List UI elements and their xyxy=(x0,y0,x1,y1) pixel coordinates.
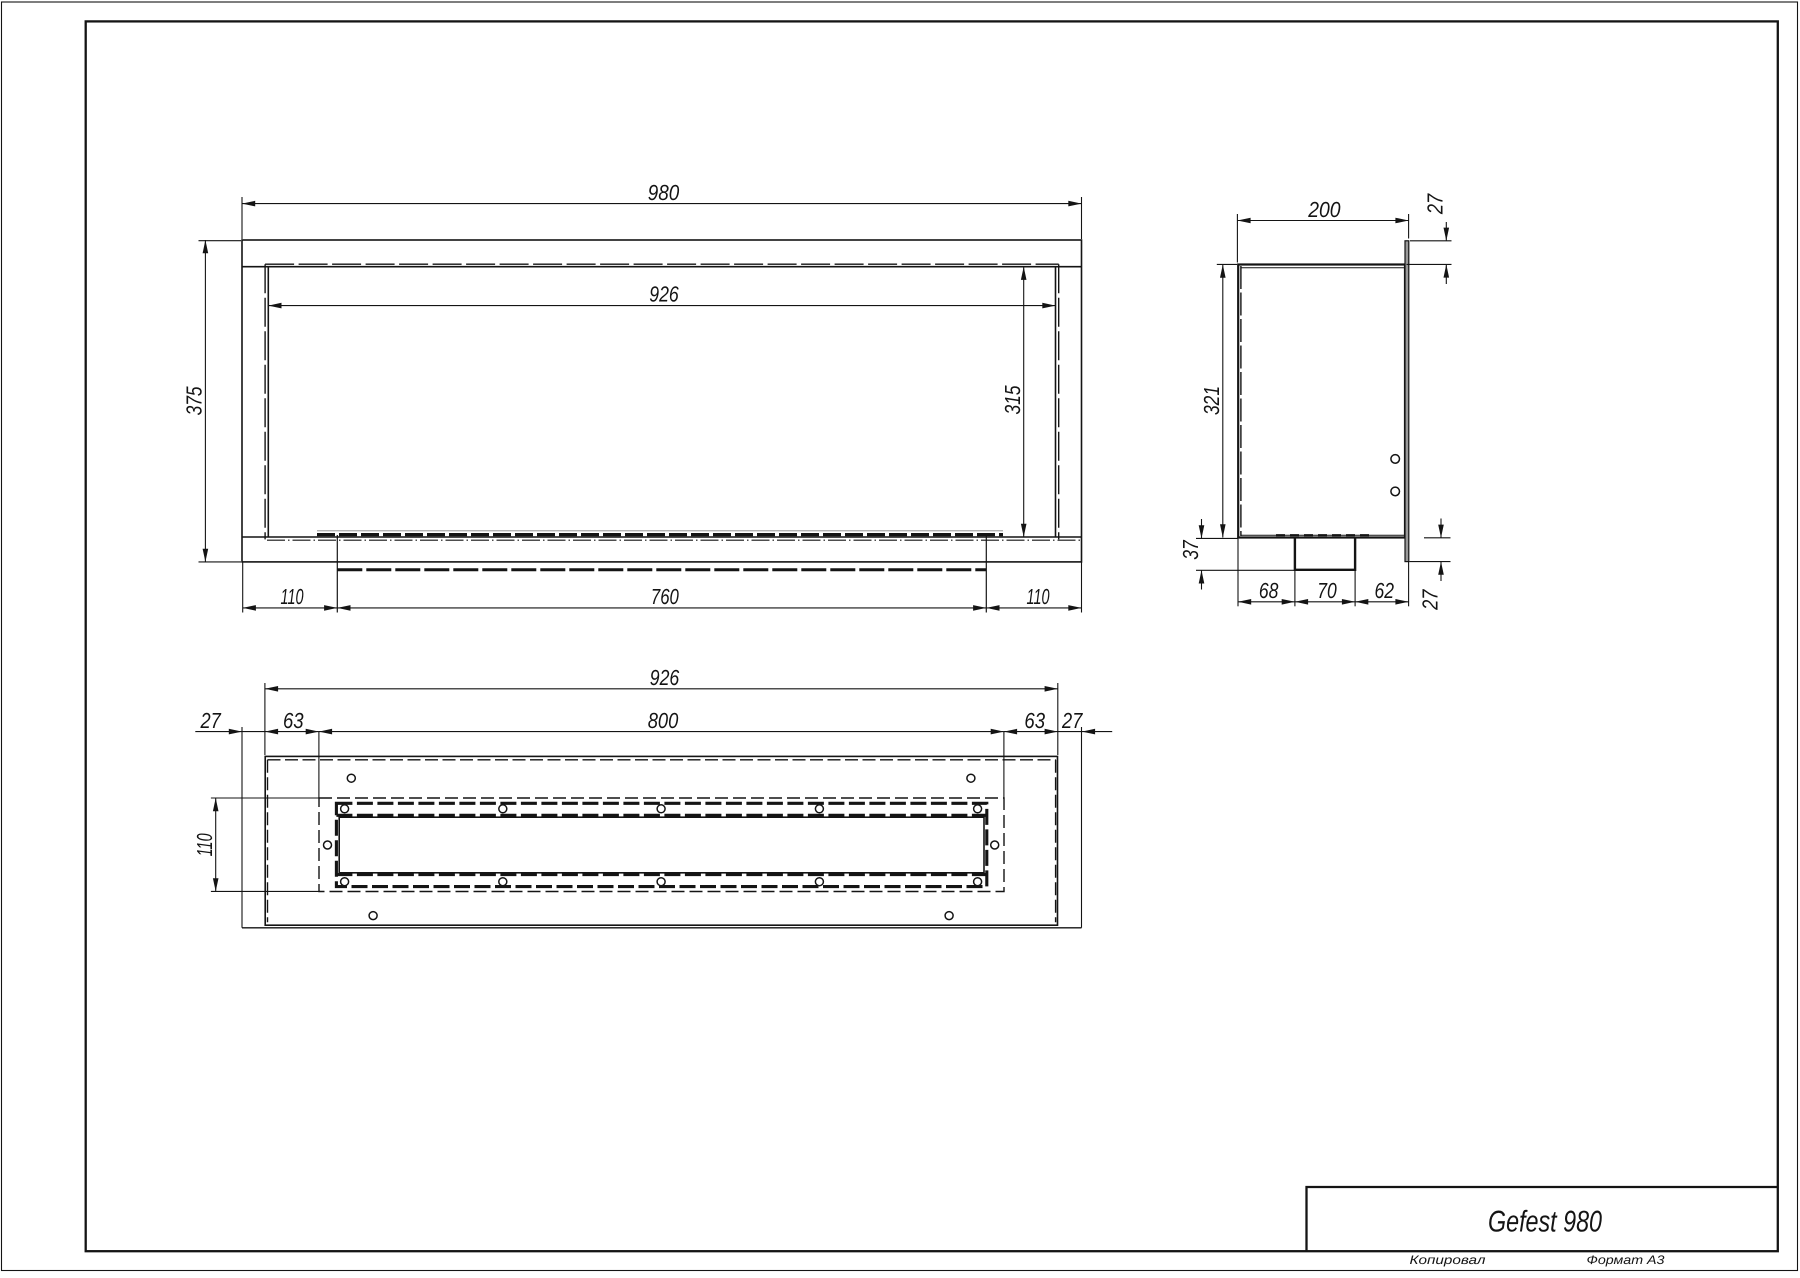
svg-text:27: 27 xyxy=(1417,589,1442,611)
svg-text:68: 68 xyxy=(1259,578,1279,603)
svg-text:321: 321 xyxy=(1199,386,1224,415)
svg-text:315: 315 xyxy=(1000,385,1025,415)
svg-text:375: 375 xyxy=(182,386,207,416)
svg-text:70: 70 xyxy=(1317,578,1337,603)
svg-text:63: 63 xyxy=(1024,708,1045,733)
svg-text:Копировал: Копировал xyxy=(1410,1253,1486,1267)
svg-text:63: 63 xyxy=(283,708,304,733)
svg-text:37: 37 xyxy=(1178,540,1203,560)
svg-text:926: 926 xyxy=(650,665,680,690)
svg-text:110: 110 xyxy=(192,833,217,856)
svg-text:980: 980 xyxy=(648,180,680,205)
svg-text:760: 760 xyxy=(651,584,679,609)
svg-text:110: 110 xyxy=(281,584,304,609)
svg-text:27: 27 xyxy=(200,708,222,733)
svg-text:62: 62 xyxy=(1375,578,1395,603)
svg-text:Gefest 980: Gefest 980 xyxy=(1488,1206,1602,1239)
svg-text:Формат А3: Формат А3 xyxy=(1587,1253,1665,1267)
svg-text:27: 27 xyxy=(1423,193,1448,215)
svg-text:200: 200 xyxy=(1307,197,1340,222)
svg-text:926: 926 xyxy=(649,282,679,307)
svg-text:800: 800 xyxy=(648,708,679,733)
svg-text:110: 110 xyxy=(1027,584,1050,609)
svg-text:27: 27 xyxy=(1061,708,1083,733)
